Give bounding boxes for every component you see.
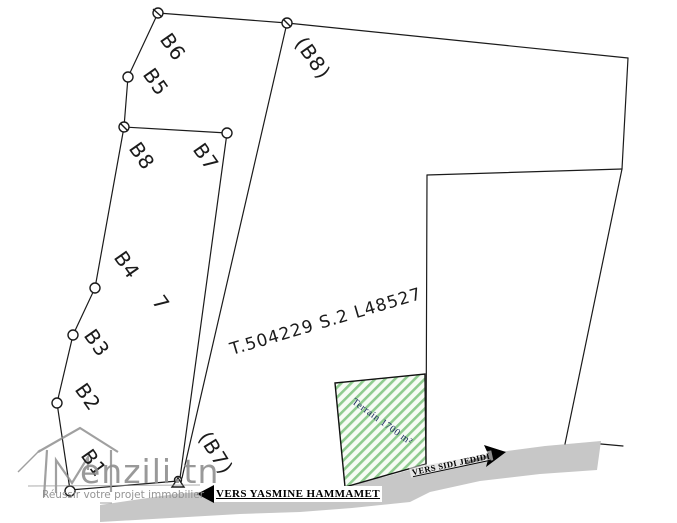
brand-watermark: enzili.tn: [80, 452, 219, 491]
survey-markers: [52, 8, 292, 496]
road-label-yasmine: VERS YASMINE HAMMAMET: [214, 486, 382, 502]
cadastral-plan: B6 B5 (B8) B8 B7 B4 7 B3 B2 B1 (B7) T.50…: [0, 0, 677, 523]
brand-tagline: Réussir votre projet immobilier: [42, 489, 204, 501]
survey-drawing: [0, 0, 677, 523]
